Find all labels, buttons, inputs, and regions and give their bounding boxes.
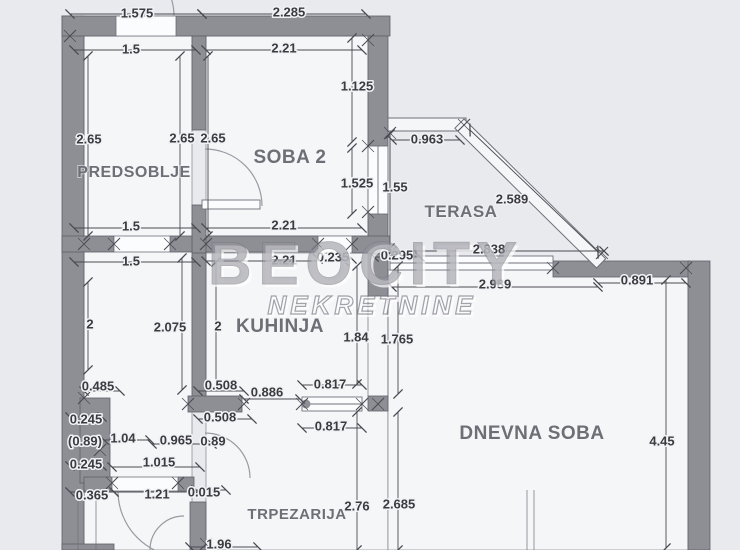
dimension-label: 0.965 xyxy=(160,433,193,448)
dimension-label: 1.84 xyxy=(343,330,369,345)
floorplan-svg: 1.5752.2851.52.211.1252.652.652.651.5251… xyxy=(0,0,740,550)
wall-segment xyxy=(62,236,114,252)
dimension-label: 1.04 xyxy=(110,431,136,446)
dimension-label: 2.65 xyxy=(200,131,225,146)
dimension-label: 0.365 xyxy=(76,488,109,503)
floorplan-image: 1.5752.2851.52.211.1252.652.652.651.5251… xyxy=(0,0,740,550)
dimension-label: (0.89) xyxy=(68,434,102,449)
door-pivot-dot xyxy=(302,400,311,409)
dimension-label: 0.015 xyxy=(188,485,221,500)
room-label: KUHINJA xyxy=(236,316,324,337)
wall-segment xyxy=(62,16,118,36)
dimension-label: 1.015 xyxy=(143,455,176,470)
dimension-label: 0.485 xyxy=(82,379,115,394)
room-label: SOBA 2 xyxy=(253,147,326,168)
dimension-label: 0.508 xyxy=(204,410,237,425)
dimension-label: 1.525 xyxy=(341,176,374,191)
dimension-label: 1.21 xyxy=(144,487,169,502)
dimension-label: 1.575 xyxy=(121,6,154,21)
door-opening xyxy=(114,236,170,252)
dimension-label: 1.55 xyxy=(382,180,407,195)
wall-segment xyxy=(688,261,710,550)
watermark-title: BEOCITY xyxy=(208,230,524,297)
dimension-label: 2.075 xyxy=(154,320,187,335)
door-leaf xyxy=(202,200,260,209)
room-label: TERASA xyxy=(425,202,498,221)
dimension-label: 0.89 xyxy=(200,434,225,449)
dimension-label: 0.963 xyxy=(411,132,444,147)
dimension-label: 1.96 xyxy=(206,537,231,550)
dimension-label: 1.765 xyxy=(381,332,414,347)
wall-segment xyxy=(170,236,192,252)
dimension-label: 2.65 xyxy=(76,132,101,147)
dimension-label: 2.65 xyxy=(169,131,194,146)
dimension-label: 1.5 xyxy=(122,254,140,269)
dimension-label: 2.285 xyxy=(273,5,306,20)
room-label: DNEVNA SOBA xyxy=(459,423,604,444)
terrace-parapet xyxy=(388,118,466,131)
dimension-label: 0.817 xyxy=(314,377,347,392)
room-label: PREDSOBLJE xyxy=(77,164,190,181)
dimension-label: 0.891 xyxy=(621,273,654,288)
dimension-label: 0.508 xyxy=(205,378,238,393)
dimension-label: 1.125 xyxy=(341,79,374,94)
room-label: TRPEZARIJA xyxy=(247,506,346,523)
wall-segment xyxy=(192,253,206,398)
dimension-label: 2.21 xyxy=(271,41,296,56)
dimension-label: 0.817 xyxy=(315,419,348,434)
dimension-label: 2 xyxy=(86,317,93,332)
wall-segment xyxy=(190,502,206,550)
dimension-label: 0.245 xyxy=(70,412,103,427)
dimension-label: 2.589 xyxy=(496,192,529,207)
dimension-label: 1.5 xyxy=(122,42,140,57)
dimension-label: 1.5 xyxy=(122,219,140,234)
dimension-label: 0.886 xyxy=(251,385,284,400)
dimension-label: 4.45 xyxy=(649,434,674,449)
dimension-label: 2 xyxy=(214,319,221,334)
dimension-label: 2.685 xyxy=(383,497,416,512)
wall-segment xyxy=(62,544,114,550)
dimension-label: 0.245 xyxy=(70,457,103,472)
dimension-label: 2.76 xyxy=(344,499,369,514)
